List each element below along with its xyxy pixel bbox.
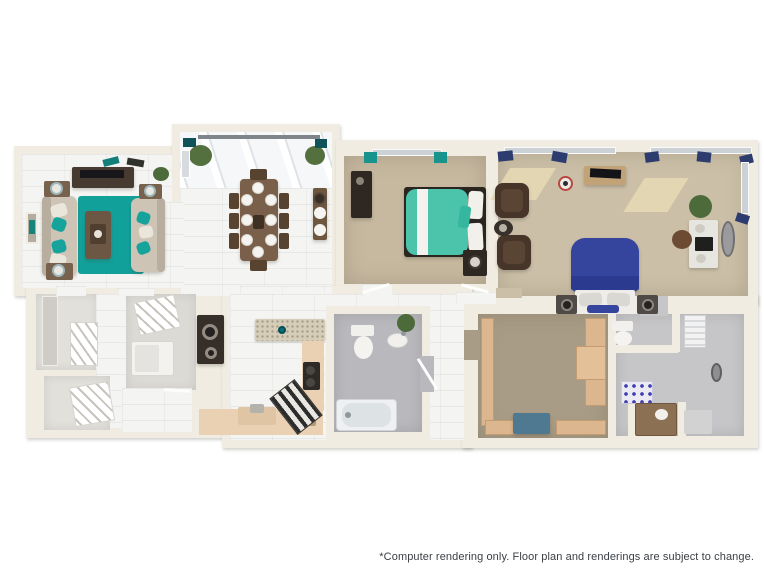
dining-chair-bottom — [250, 260, 267, 271]
curtain-master-1 — [498, 150, 514, 162]
dining-chair-left-3 — [229, 233, 239, 249]
desk-laptop — [695, 237, 713, 251]
closet-shelf-bottom-right — [556, 420, 606, 435]
closet-shelf-mid — [576, 346, 606, 380]
window-bedroom2 — [372, 149, 442, 156]
lamp-top-right — [144, 185, 156, 197]
dining-centerpiece — [253, 215, 264, 229]
plant-living — [153, 167, 169, 181]
toilet-hallbath-tank — [351, 325, 374, 336]
hall-east — [456, 292, 496, 304]
bathtub-hallbath-faucet — [345, 412, 351, 418]
plate-left-2 — [241, 214, 253, 226]
tv-living — [80, 170, 124, 178]
door-gap-living-laundry — [118, 288, 154, 296]
lamp-bedroom2 — [468, 255, 482, 269]
desk-item-1 — [695, 224, 705, 233]
kitchen-faucet — [278, 326, 286, 334]
bed2-sheet — [417, 189, 428, 255]
door-gap-master — [496, 288, 522, 298]
bed-master-fold — [571, 276, 639, 290]
dining-chair-top — [250, 169, 267, 180]
bath-mat-masterbath — [684, 410, 712, 434]
bed2-pillow-2 — [467, 223, 483, 252]
decor-fan-hub — [563, 181, 568, 186]
sunroom-side-window — [181, 150, 190, 178]
iwall-masterbath-h — [616, 345, 678, 353]
tv-master — [590, 168, 621, 179]
vanity-sink-masterbath — [655, 409, 668, 420]
mirror-masterbath — [711, 363, 722, 382]
floorplan-rendering — [0, 0, 764, 573]
dining-chair-left-2 — [229, 213, 239, 229]
floor-mudroom — [122, 388, 192, 432]
window-master-right — [741, 162, 749, 214]
armchair-2-cushion — [503, 241, 525, 264]
plate-left-1 — [241, 194, 253, 206]
shower-masterbath — [684, 315, 706, 348]
curtain-sunroom-right — [315, 139, 327, 148]
curtain-master-4 — [697, 151, 712, 162]
curtain-sunroom-left — [183, 138, 196, 147]
coffee-table-decor — [94, 230, 102, 238]
plant-hallbath — [397, 314, 415, 332]
bar-stool — [313, 192, 326, 205]
iwall-masterbath-v — [672, 314, 680, 352]
curtain-bedroom2-left — [364, 152, 377, 163]
plate-top — [252, 182, 264, 194]
washer-dryer-drum-1 — [202, 324, 218, 340]
closet-shelf-left — [481, 318, 494, 426]
armchair-1-cushion — [501, 189, 523, 212]
bar-plate-2 — [314, 224, 326, 236]
dining-chair-right-2 — [279, 213, 289, 229]
speaker-left-cone — [561, 299, 573, 311]
bar-plate-1 — [314, 207, 326, 219]
curtain-master-3 — [644, 151, 659, 163]
toilet-hallbath-bowl — [354, 336, 373, 359]
closet2-wire-shelf — [69, 381, 115, 427]
dining-chair-left-1 — [229, 193, 239, 209]
dining-chair-right-3 — [279, 233, 289, 249]
speaker-right-cone — [642, 299, 654, 311]
rug-masterbath — [621, 381, 653, 404]
toilet-masterbath-bowl — [614, 331, 632, 346]
plant-sunroom-right — [305, 146, 325, 165]
entry-shelf-boxes — [70, 322, 98, 366]
mirror-master — [721, 221, 735, 257]
disclaimer-text: *Computer rendering only. Floor plan and… — [379, 551, 754, 563]
plant-master — [689, 195, 712, 218]
closet-bench — [513, 413, 550, 434]
plate-right-3 — [265, 234, 277, 246]
entry-closet-door — [42, 296, 58, 366]
kitchen-sink-2 — [250, 404, 264, 413]
lamp-bottom-left — [52, 264, 65, 277]
sofa-right-back — [157, 198, 165, 272]
toilet-masterbath-tank — [612, 321, 633, 331]
opening-living-dining — [170, 202, 184, 288]
plant-sunroom-left — [189, 145, 212, 166]
wall-art-accent — [29, 220, 35, 234]
washer-lid — [135, 345, 159, 372]
vanity-masterbath — [635, 403, 677, 436]
curtain-bedroom2-right — [434, 152, 447, 163]
side-table-master-decor — [499, 224, 507, 232]
desk-item-2 — [696, 254, 706, 263]
sunroom-glass-edge — [198, 135, 320, 139]
plate-right-2 — [265, 214, 277, 226]
bed-master-accent-pillow — [587, 305, 619, 313]
plate-right-1 — [265, 194, 277, 206]
range-burner-1 — [306, 366, 315, 375]
range-burner-2 — [306, 378, 315, 387]
desk-chair-master — [672, 230, 692, 249]
plate-left-3 — [241, 234, 253, 246]
washer-dryer-drum-2 — [205, 347, 217, 359]
plate-bottom — [252, 246, 264, 258]
dining-chair-right-1 — [279, 193, 289, 209]
door-gap-walkin-closet — [464, 330, 480, 360]
dresser-decor — [356, 177, 364, 185]
door-gap-living-entry — [56, 286, 86, 296]
kitchen-counter-top — [255, 319, 325, 341]
lamp-top-left — [50, 182, 63, 195]
